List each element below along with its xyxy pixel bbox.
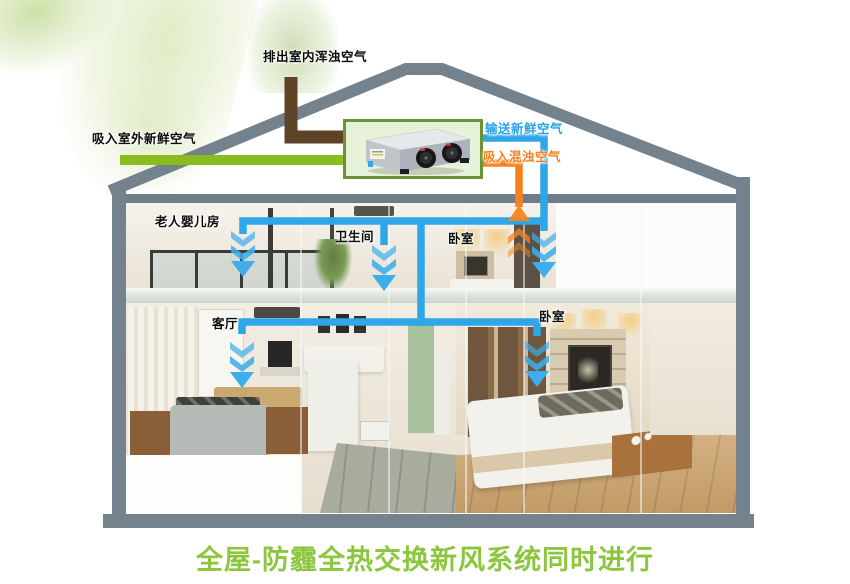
label-exhaust-outdoor: 排出室内浑浊空气 [263, 46, 367, 65]
label-supply-fresh: 输送新鲜空气 [485, 118, 563, 137]
pillows [538, 387, 624, 418]
return-duct-orange [480, 163, 519, 207]
wall-picture [464, 256, 488, 276]
glass-partition [300, 203, 302, 513]
diagram-title: 全屋-防霾全热交换新风系统同时进行 [0, 538, 850, 577]
kitchen-cabinet [434, 351, 450, 435]
sofa [170, 405, 270, 455]
foundation [103, 514, 754, 528]
label-return-stale: 吸入混浊空气 [483, 146, 561, 165]
kitchen-cabinet [408, 321, 434, 433]
bed [466, 385, 636, 489]
wall-picture [318, 316, 330, 333]
cutaway-space [126, 455, 302, 513]
house-interior [126, 203, 737, 513]
upper-right-space [556, 203, 737, 288]
wall-picture [354, 316, 366, 333]
sticker-line [372, 151, 383, 153]
ceiling-fixture [254, 307, 300, 318]
ventilation-diagram: 排出室内浑浊空气 吸入室外新鲜空气 输送新鲜空气 吸入混浊空气 老人婴儿房 卫生… [0, 0, 850, 584]
label-bedroom-lower: 卧室 [539, 306, 565, 325]
bedroom-wall [650, 303, 737, 435]
glass-partition [388, 203, 390, 513]
glass-partition [640, 203, 642, 513]
right-wall [736, 177, 750, 528]
fan-left-hub [424, 156, 427, 159]
machine-logo [368, 161, 373, 167]
picture-art [578, 355, 598, 385]
balcony-railing [150, 250, 332, 293]
stone-walkway [320, 443, 462, 513]
label-living-room: 客厅 [212, 313, 238, 332]
ceiling-beam [126, 194, 736, 203]
sticker-line [372, 154, 383, 156]
side-table [130, 411, 170, 455]
fan-right-mark [446, 144, 451, 147]
fresh-air-plume [30, 0, 260, 218]
label-bedroom-upper: 卧室 [448, 228, 474, 247]
machine-foot [400, 169, 409, 174]
fan-left-mark [420, 149, 425, 152]
glass-partition [523, 203, 525, 513]
heat-exchanger-machine [346, 122, 480, 176]
fan-right-hub [450, 151, 453, 154]
counter [308, 361, 358, 451]
wall-picture [336, 314, 349, 333]
tv [268, 341, 292, 367]
label-intake-outdoor: 吸入室外新鲜空气 [92, 128, 196, 147]
label-elder-baby-room: 老人婴儿房 [155, 211, 220, 230]
label-bathroom: 卫生间 [335, 226, 374, 245]
left-wall [112, 186, 126, 528]
machine-foot [460, 158, 469, 163]
glass-partition [465, 203, 467, 513]
heat-exchanger-unit [343, 119, 483, 179]
ac-unit [360, 421, 390, 441]
window-frame [268, 208, 273, 290]
plant [314, 239, 352, 291]
fresh-air-plume-corner [0, 0, 133, 90]
tv-stand [260, 367, 300, 376]
exhaust-duct-brown [291, 77, 344, 137]
blanket [472, 440, 635, 473]
